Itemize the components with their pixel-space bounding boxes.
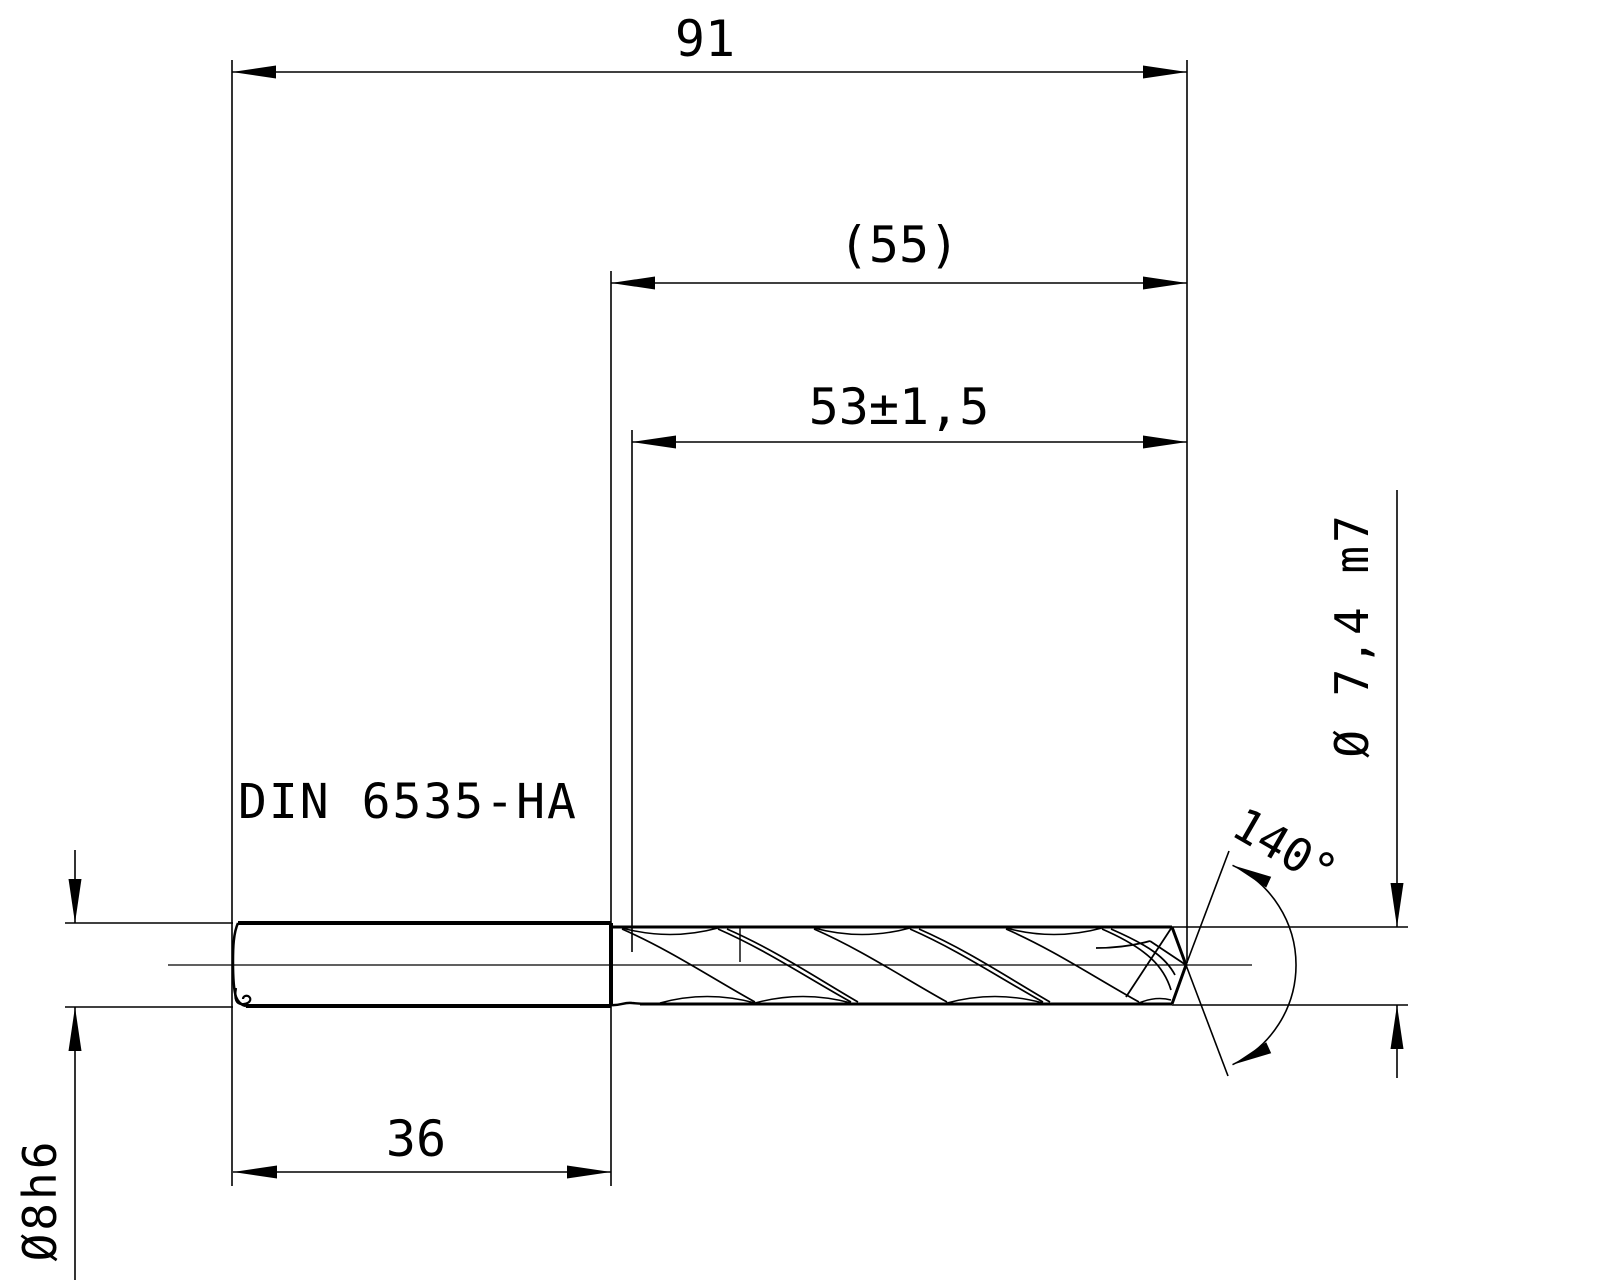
shank-standard-label: DIN 6535-HA [238, 774, 578, 830]
drawing-canvas: 91 (55) 53±1,5 DIN 6535-HA 36 Ø8h6 Ø 7,4… [0, 0, 1600, 1280]
dim-cutting-diameter-label: Ø 7,4 m7 [1325, 512, 1379, 758]
dim-flute-length-ref-label: (55) [839, 216, 959, 274]
dim-shank-length-label: 36 [386, 1110, 446, 1168]
technical-drawing: 91 (55) 53±1,5 DIN 6535-HA 36 Ø8h6 Ø 7,4… [0, 0, 1600, 1280]
dim-usable-length-label: 53±1,5 [809, 378, 990, 436]
dim-overall-length-label: 91 [675, 10, 735, 68]
dim-shank-diameter-label: Ø8h6 [13, 1139, 67, 1262]
